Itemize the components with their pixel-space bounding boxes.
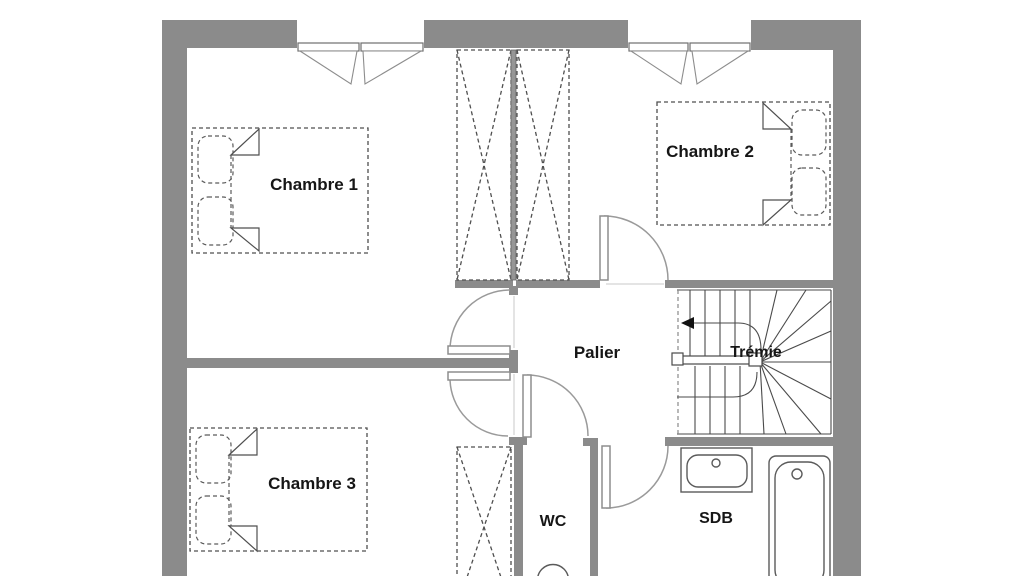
bed-outline xyxy=(657,102,830,225)
pillow xyxy=(792,110,826,155)
window-casement-swing xyxy=(363,51,421,84)
stair-treads-lower-flight xyxy=(695,366,740,434)
sheet-corner xyxy=(229,429,257,455)
door-leaf xyxy=(600,216,608,280)
door-swing-arc xyxy=(606,446,668,508)
door-swing-arc xyxy=(527,375,588,436)
door-sdb xyxy=(602,446,668,508)
sheet-corner xyxy=(763,103,791,129)
door-leaf xyxy=(602,446,610,508)
sink xyxy=(681,448,752,492)
door-chambre3 xyxy=(448,372,514,436)
partition-stub-wc-left-top xyxy=(509,437,527,445)
exterior-wall-top-middle xyxy=(424,20,628,48)
door-leaf xyxy=(523,375,531,437)
door-wc xyxy=(523,375,588,437)
wardrobe-cross xyxy=(457,447,511,576)
sheet-corner xyxy=(763,200,791,225)
stair-winder-treads xyxy=(760,290,831,434)
room-label-chambre2: Chambre 2 xyxy=(666,142,754,161)
exterior-wall-left xyxy=(162,20,187,576)
window-sash-frame xyxy=(629,43,688,51)
staircase xyxy=(672,290,831,434)
walking-line-lower xyxy=(677,372,757,397)
pillow xyxy=(196,435,231,483)
window-chambre1 xyxy=(298,43,423,84)
door-swing-arc xyxy=(450,378,508,436)
partition-stairs-top xyxy=(665,280,833,288)
sink-drain xyxy=(712,459,720,467)
window-sash-frame xyxy=(298,43,359,51)
sheet-corner xyxy=(231,228,259,251)
sheet-corner xyxy=(231,129,259,155)
door-swing-arc xyxy=(604,216,668,280)
window-casement-swing xyxy=(631,51,687,84)
exterior-wall-right xyxy=(833,50,861,576)
door-chambre1 xyxy=(448,290,514,354)
window-casement-swing xyxy=(692,51,748,84)
bathtub-drain xyxy=(792,469,802,479)
partition-closet-bottom-right xyxy=(516,280,600,288)
pillow xyxy=(198,197,233,245)
partition-wc-right xyxy=(590,441,598,576)
room-label-sdb: SDB xyxy=(699,510,733,527)
room-label-chambre3: Chambre 3 xyxy=(268,474,356,493)
window-sash-frame xyxy=(690,43,750,51)
stair-direction-arrow xyxy=(681,317,694,329)
door-leaf xyxy=(448,372,510,380)
room-label-wc: WC xyxy=(540,513,567,530)
window-casement-swing xyxy=(300,51,357,84)
window-sash-frame xyxy=(361,43,423,51)
pillow xyxy=(792,168,826,215)
partition-chambre1-chambre3 xyxy=(187,358,517,368)
wardrobe-top-right xyxy=(517,50,569,280)
partition-stairs-bottom xyxy=(665,437,833,446)
wardrobe-cross xyxy=(457,447,511,576)
partition-stub-palier-top xyxy=(509,286,518,295)
rail-newel-post xyxy=(672,353,683,365)
floor-plan: Chambre 1 Chambre 2 Chambre 3 Palier Tré… xyxy=(0,0,1024,576)
door-swing-arc xyxy=(450,290,510,350)
window-chambre2 xyxy=(629,43,750,84)
bathtub xyxy=(769,456,830,576)
door-leaf xyxy=(448,346,510,354)
exterior-wall-top-right-block xyxy=(751,20,861,50)
pillow xyxy=(196,496,231,544)
room-label-chambre1: Chambre 1 xyxy=(270,175,358,194)
partition-wc-left xyxy=(514,445,523,576)
partition-closet-bottom-left xyxy=(455,280,513,288)
wardrobe-divider xyxy=(511,50,516,280)
wardrobe-outline xyxy=(457,447,511,576)
wardrobe-chambre3 xyxy=(457,447,511,576)
pillow xyxy=(198,136,233,183)
room-label-palier: Palier xyxy=(574,343,621,362)
wardrobe-top-left xyxy=(457,50,511,280)
toilet xyxy=(538,565,569,576)
room-label-tremie: Trémie xyxy=(730,344,782,361)
door-chambre2 xyxy=(600,216,668,284)
sheet-corner xyxy=(229,526,257,551)
bed-chambre2 xyxy=(657,102,830,225)
exterior-wall-top-left xyxy=(162,20,297,48)
